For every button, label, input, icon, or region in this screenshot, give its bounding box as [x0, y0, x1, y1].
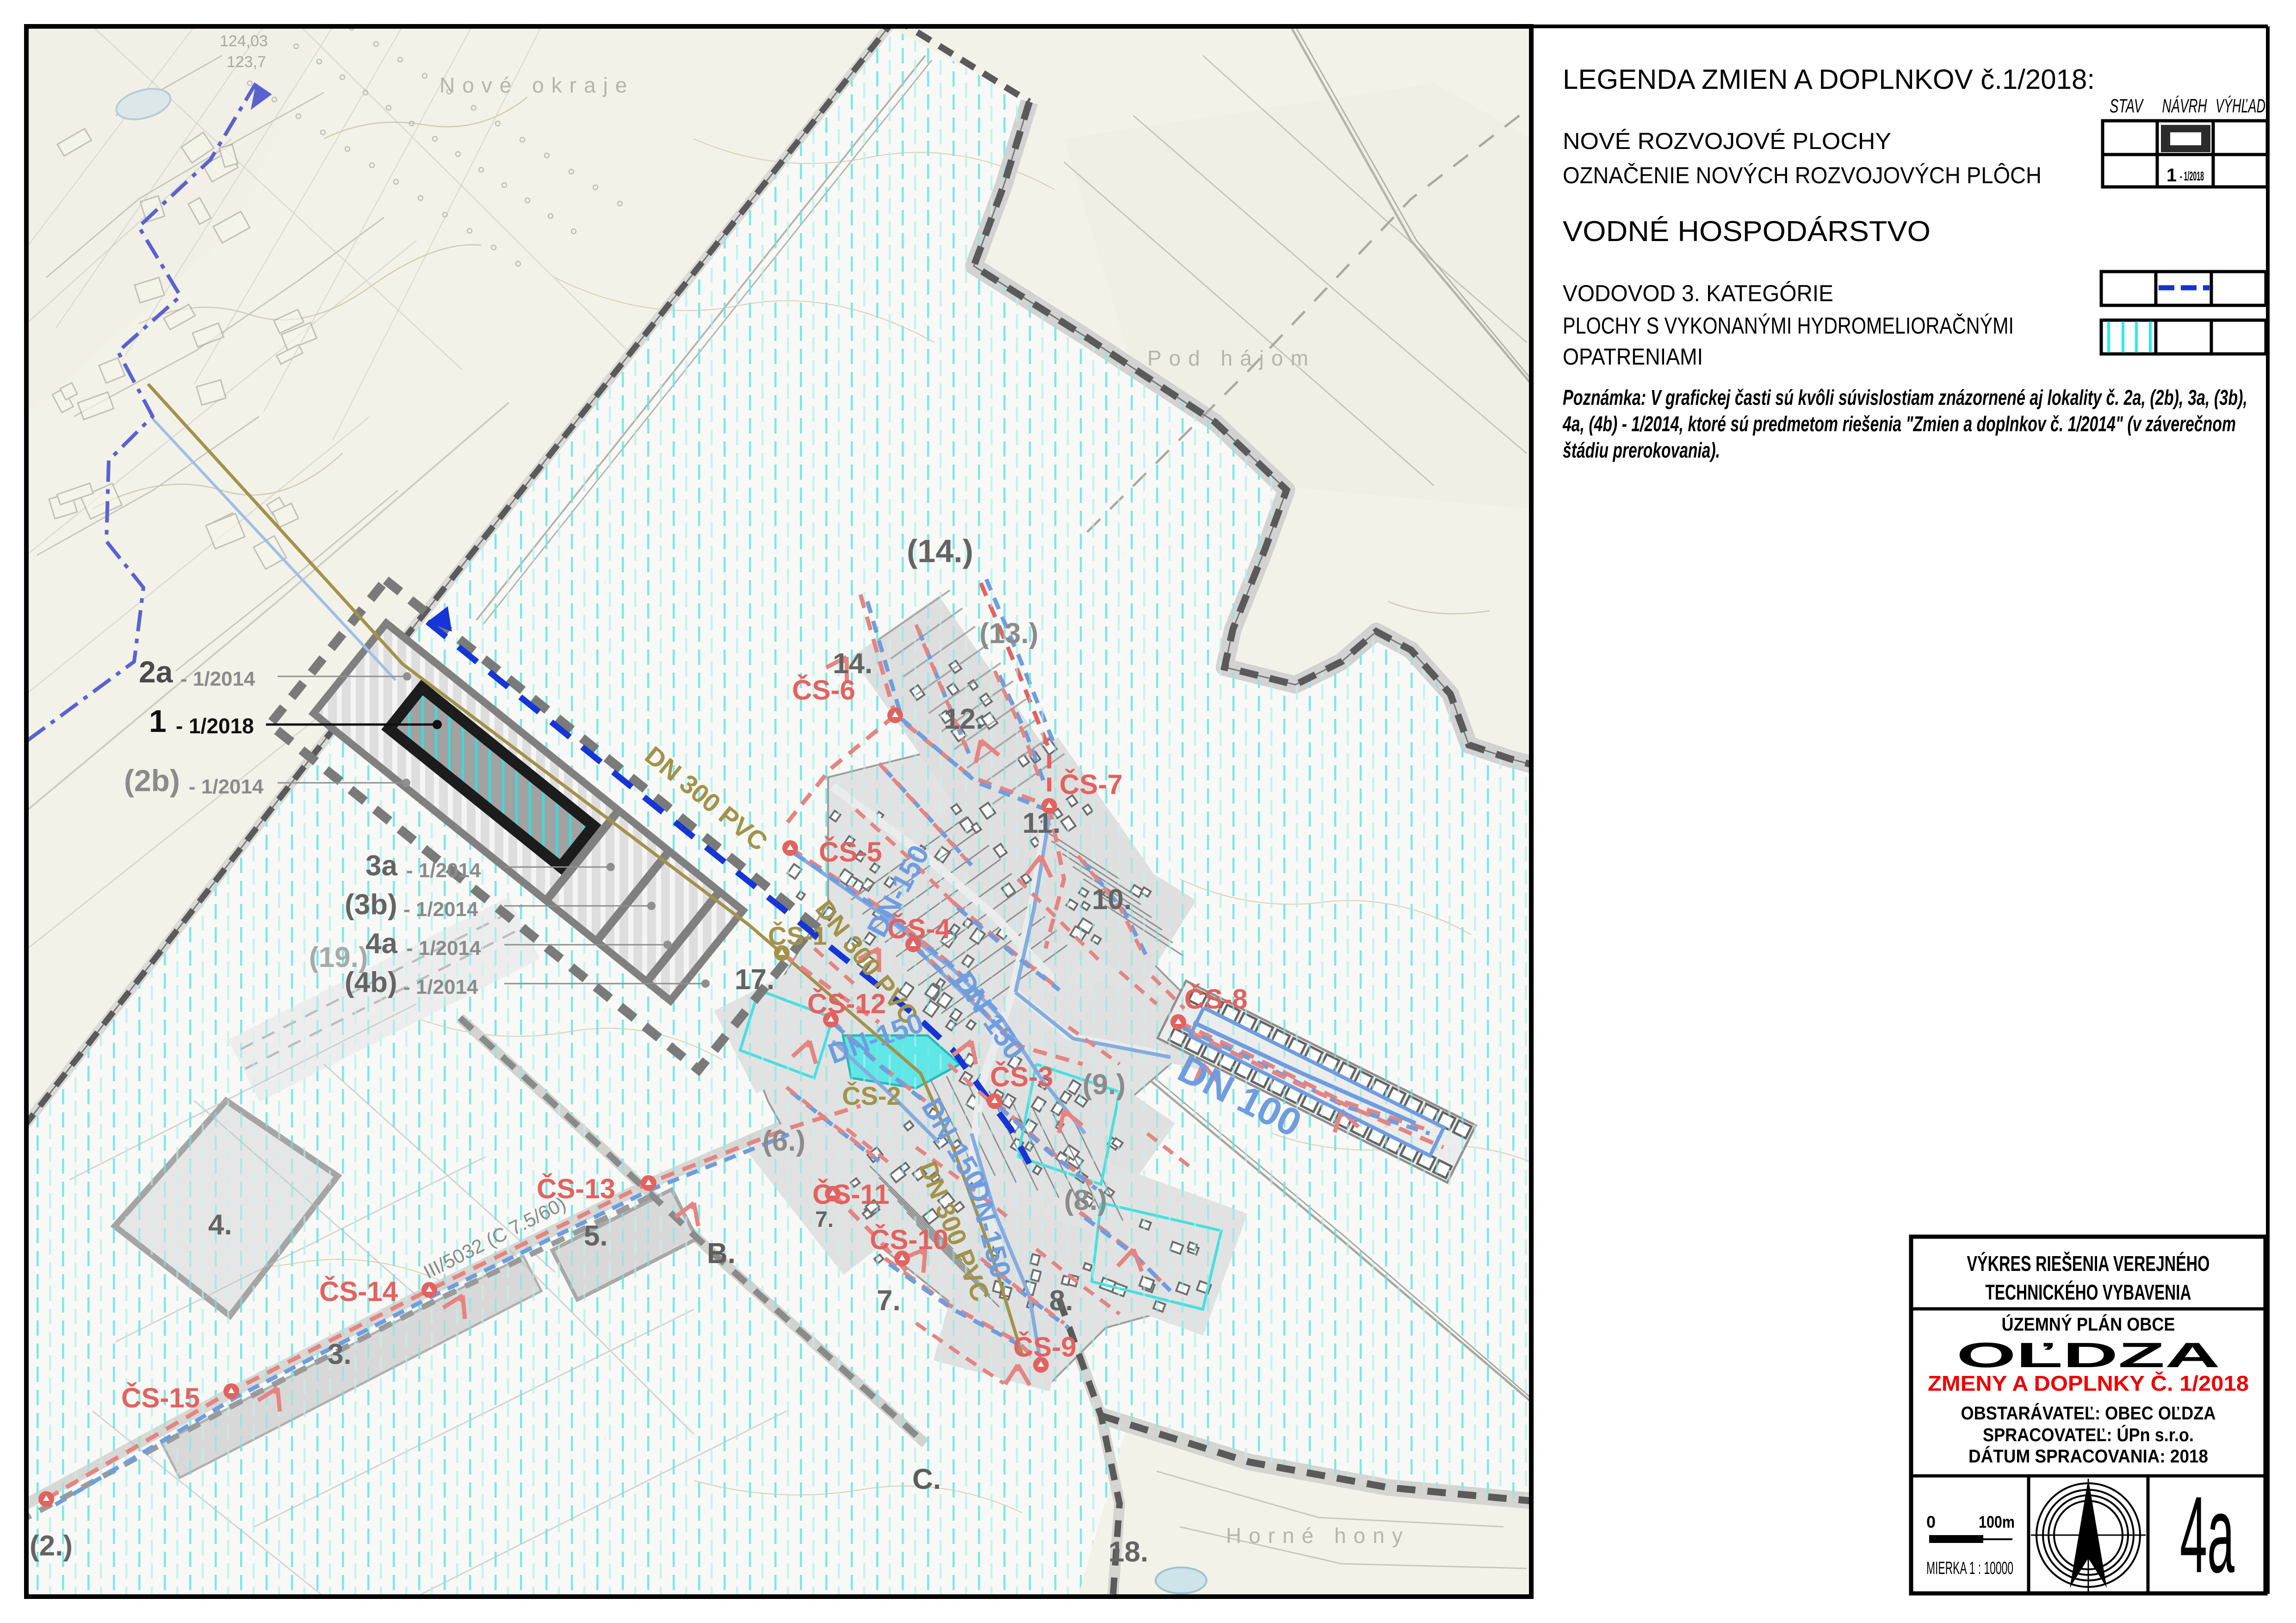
svg-text:7.: 7.: [877, 1285, 901, 1317]
svg-text:(14.): (14.): [907, 533, 973, 569]
svg-text:3.: 3.: [328, 1338, 352, 1370]
svg-text:VODOVOD 3. KATEGÓRIE: VODOVOD 3. KATEGÓRIE: [1563, 280, 1833, 306]
svg-text:(2b): (2b): [124, 763, 180, 798]
svg-text:12.: 12.: [944, 703, 984, 735]
svg-text:VÝHĽAD: VÝHĽAD: [2216, 95, 2265, 117]
svg-text:OĽDZA: OĽDZA: [1956, 1336, 2220, 1375]
svg-text:Pod hájom: Pod hájom: [1147, 346, 1316, 370]
svg-text:OPATRENIAMI: OPATRENIAMI: [1563, 344, 1703, 370]
svg-text:- 1/2014: - 1/2014: [403, 898, 478, 921]
svg-text:3a: 3a: [365, 850, 397, 882]
svg-text:4a: 4a: [2180, 1474, 2234, 1595]
svg-text:4.: 4.: [208, 1209, 232, 1241]
svg-text:1: 1: [149, 704, 167, 739]
svg-text:ČS-7: ČS-7: [1059, 769, 1123, 800]
svg-text:ZMENY A DOPLNKY Č. 1/2018: ZMENY A DOPLNKY Č. 1/2018: [1928, 1371, 2249, 1395]
svg-text:(6.): (6.): [762, 1125, 805, 1157]
svg-text:(8.): (8.): [1064, 1184, 1107, 1216]
svg-text:124,03: 124,03: [220, 32, 268, 50]
svg-text:ÚZEMNÝ PLÁN OBCE: ÚZEMNÝ PLÁN OBCE: [2002, 1313, 2175, 1335]
svg-text:ČS-2: ČS-2: [842, 1081, 901, 1110]
svg-text:- 1/2018: - 1/2018: [176, 714, 254, 738]
svg-text:- 1/2018: - 1/2018: [2180, 169, 2204, 183]
svg-text:OZNAČENIE NOVÝCH ROZVOJOVÝCH P: OZNAČENIE NOVÝCH ROZVOJOVÝCH PLÔCH: [1563, 162, 2042, 188]
svg-text:TECHNICKÉHO VYBAVENIA: TECHNICKÉHO VYBAVENIA: [1986, 1280, 2191, 1304]
svg-text:ČS-3: ČS-3: [990, 1061, 1053, 1092]
svg-text:MIERKA 1 : 10000: MIERKA 1 : 10000: [1926, 1559, 2013, 1578]
svg-text:100m: 100m: [1979, 1512, 2015, 1531]
svg-text:17.: 17.: [735, 964, 774, 996]
svg-text:123,7: 123,7: [227, 53, 266, 71]
svg-text:18.: 18.: [1108, 1536, 1148, 1568]
svg-text:ČS-9: ČS-9: [1013, 1332, 1077, 1363]
svg-text:5.: 5.: [584, 1220, 608, 1252]
svg-text:SPRACOVATEĽ: ÚPn s.r.o.: SPRACOVATEĽ: ÚPn s.r.o.: [1983, 1424, 2194, 1445]
svg-text:- 1/2014: - 1/2014: [180, 668, 255, 690]
svg-text:- 1/2014: - 1/2014: [406, 937, 481, 960]
svg-text:LEGENDA ZMIEN A DOPLNKOV č.1/2: LEGENDA ZMIEN A DOPLNKOV č.1/2018:: [1563, 64, 2095, 95]
svg-text:C.: C.: [912, 1463, 941, 1495]
svg-text:(4b): (4b): [345, 966, 397, 998]
svg-text:ČS-11: ČS-11: [812, 1179, 890, 1210]
svg-text:OBSTARÁVATEĽ: OBEC OĽDZA: OBSTARÁVATEĽ: OBEC OĽDZA: [1961, 1403, 2216, 1424]
svg-text:7.: 7.: [815, 1208, 834, 1232]
svg-text:ČS-1: ČS-1: [768, 921, 827, 950]
svg-text:Nové okraje: Nové okraje: [439, 73, 634, 97]
svg-text:ČS-6: ČS-6: [792, 675, 855, 706]
svg-text:Horné hony: Horné hony: [1226, 1524, 1410, 1548]
svg-text:0: 0: [1926, 1512, 1936, 1531]
svg-text:8.: 8.: [1049, 1285, 1073, 1317]
svg-text:(3b): (3b): [345, 889, 397, 921]
svg-text:NOVÉ ROZVOJOVÉ PLOCHY: NOVÉ ROZVOJOVÉ PLOCHY: [1563, 128, 1891, 154]
svg-text:NÁVRH: NÁVRH: [2162, 95, 2207, 117]
svg-text:DÁTUM SPRACOVANIA: 2018: DÁTUM SPRACOVANIA: 2018: [1968, 1446, 2208, 1467]
svg-text:ČS-8: ČS-8: [1184, 984, 1248, 1015]
svg-text:ČS-15: ČS-15: [121, 1382, 200, 1413]
svg-text:- 1/2014: - 1/2014: [406, 859, 481, 882]
svg-text:VÝKRES RIEŠENIA VEREJNÉHO: VÝKRES RIEŠENIA VEREJNÉHO: [1967, 1251, 2210, 1276]
svg-text:10.: 10.: [1092, 884, 1132, 916]
svg-text:4a, (4b) - 1/2014, ktoré sú pr: 4a, (4b) - 1/2014, ktoré sú predmetom ri…: [1562, 412, 2236, 436]
svg-text:1: 1: [2166, 165, 2177, 186]
svg-text:VODNÉ HOSPODÁRSTVO: VODNÉ HOSPODÁRSTVO: [1563, 216, 1931, 248]
svg-text:(2.): (2.): [30, 1530, 73, 1562]
svg-text:PLOCHY S VYKONANÝMI HYDROMELIO: PLOCHY S VYKONANÝMI HYDROMELIORAČNÝMI: [1563, 313, 2014, 339]
svg-text:ČS-5: ČS-5: [819, 836, 882, 867]
svg-text:2a: 2a: [139, 655, 173, 689]
svg-text:štádiu prerokovania).: štádiu prerokovania).: [1563, 438, 1720, 462]
svg-text:Poznámka: V grafickej časti sú: Poznámka: V grafickej časti sú kvôli súv…: [1563, 385, 2247, 409]
svg-text:(9.): (9.): [1083, 1069, 1126, 1101]
svg-text:B.: B.: [707, 1238, 736, 1270]
svg-text:ČS-10: ČS-10: [870, 1224, 948, 1255]
svg-text:ČS-14: ČS-14: [319, 1276, 398, 1307]
svg-text:STAV: STAV: [2110, 95, 2144, 117]
svg-text:11.: 11.: [1022, 807, 1061, 839]
svg-text:4a: 4a: [365, 928, 397, 960]
svg-text:(13.): (13.): [979, 618, 1038, 650]
svg-text:- 1/2014: - 1/2014: [189, 775, 264, 798]
svg-text:- 1/2014: - 1/2014: [403, 976, 478, 998]
